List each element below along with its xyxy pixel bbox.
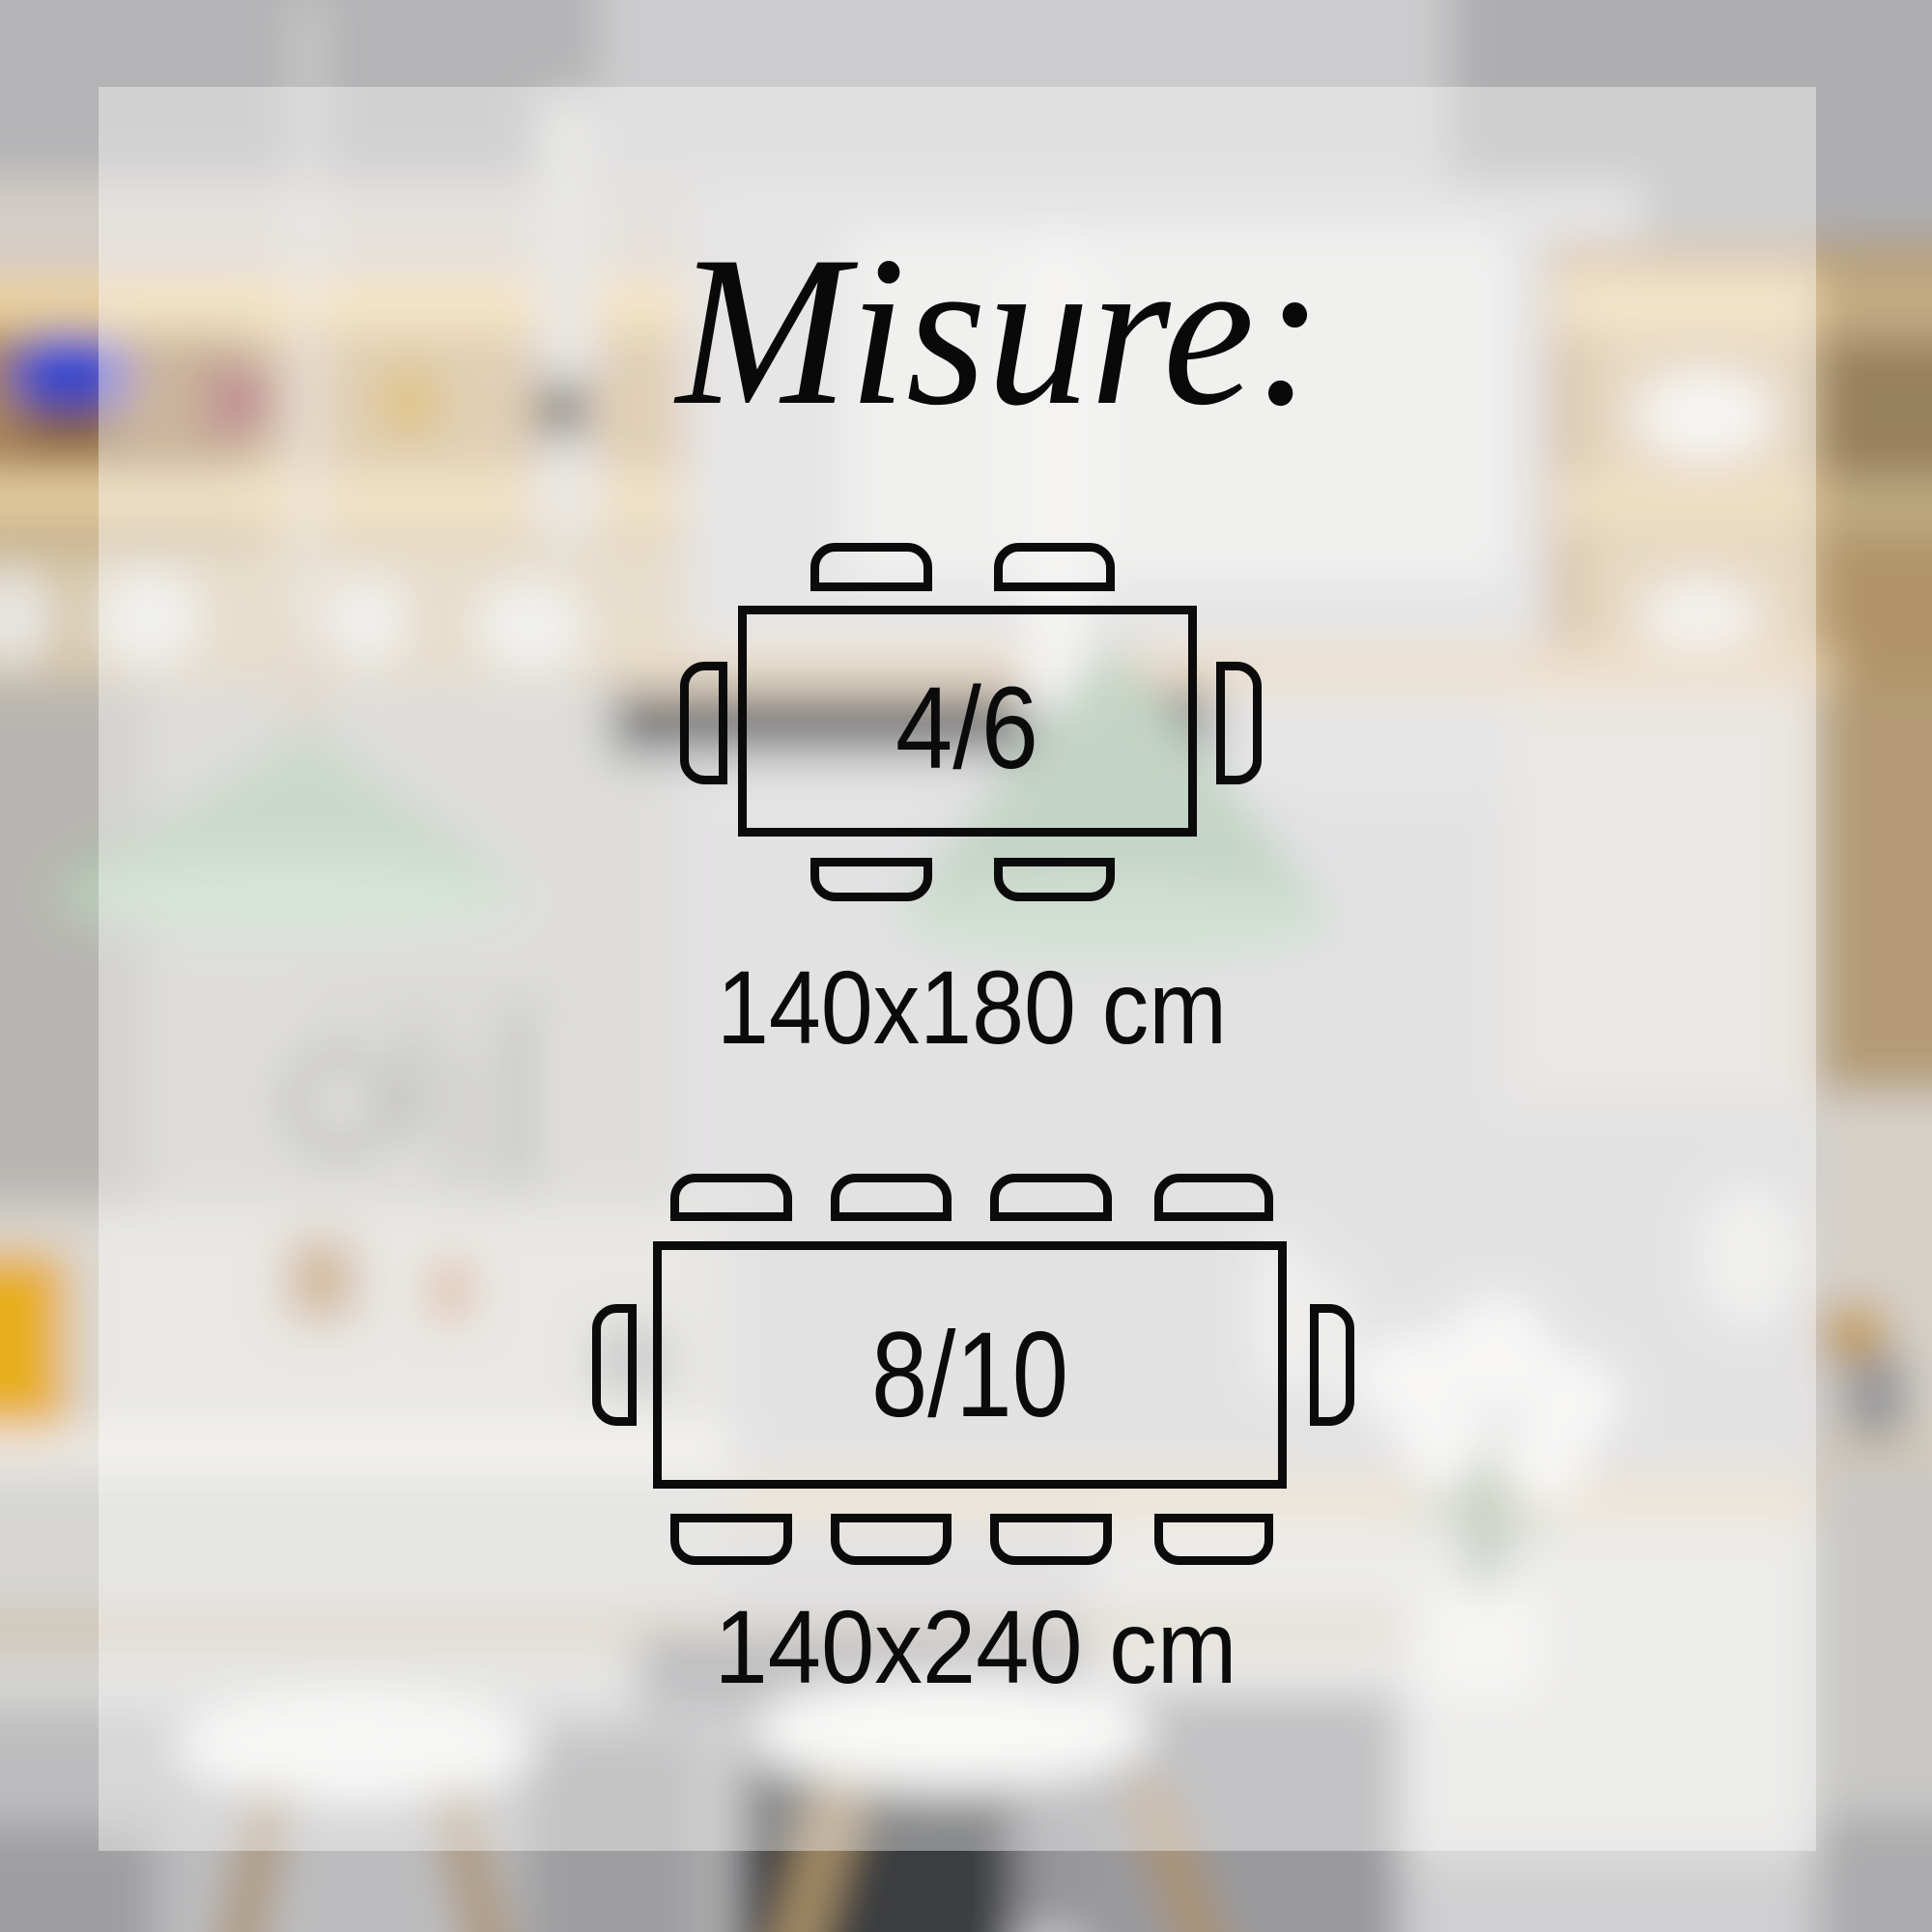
svg-text:140x180 cm: 140x180 cm — [717, 949, 1227, 1065]
svg-text:140x240 cm: 140x240 cm — [715, 1588, 1237, 1705]
svg-text:4/6: 4/6 — [895, 662, 1038, 793]
svg-text:Misure:: Misure: — [673, 213, 1323, 450]
svg-text:8/10: 8/10 — [871, 1308, 1068, 1442]
